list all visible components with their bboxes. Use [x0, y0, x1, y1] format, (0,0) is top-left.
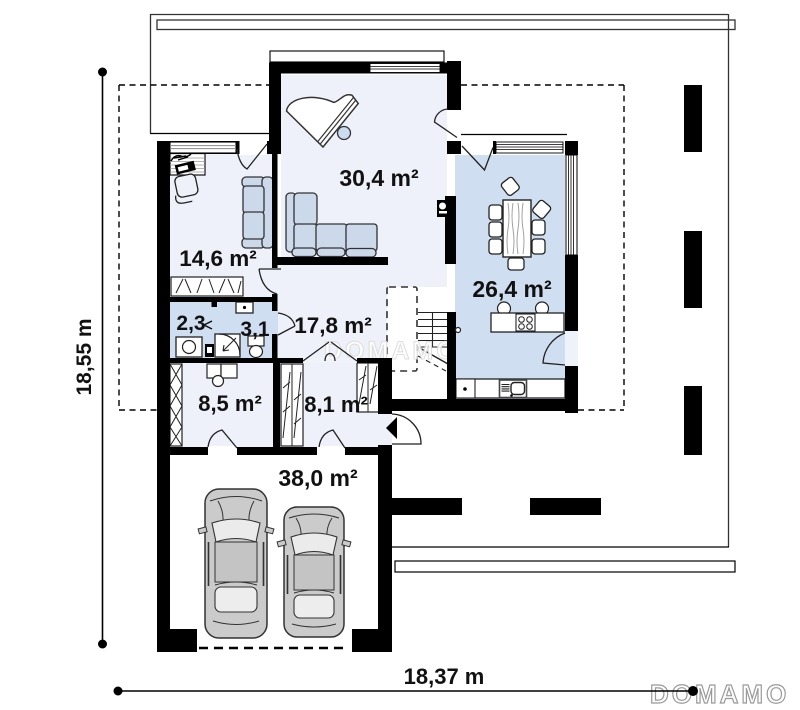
svg-text:DOMAMO: DOMAMO — [650, 679, 789, 709]
svg-text:3,1: 3,1 — [240, 318, 270, 341]
svg-text:2,3: 2,3 — [176, 312, 205, 335]
svg-text:8,5 m²: 8,5 m² — [198, 391, 262, 416]
svg-text:18,37 m: 18,37 m — [404, 664, 485, 689]
svg-text:26,4 m²: 26,4 m² — [472, 276, 552, 302]
svg-text:30,4 m²: 30,4 m² — [339, 165, 419, 191]
svg-text:38,0 m²: 38,0 m² — [278, 465, 358, 491]
svg-text:18,55 m: 18,55 m — [73, 318, 96, 395]
svg-text:17,8 m²: 17,8 m² — [294, 313, 372, 338]
svg-text:8,1 m²: 8,1 m² — [304, 392, 368, 417]
svg-text:14,6 m²: 14,6 m² — [179, 246, 257, 271]
